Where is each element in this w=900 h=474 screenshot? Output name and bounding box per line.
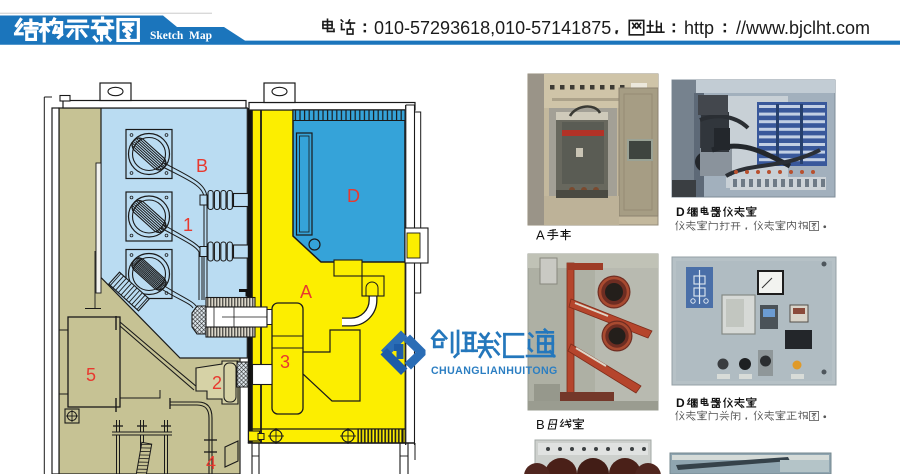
svg-text:010-57293618,010-57141875: 010-57293618,010-57141875	[374, 18, 611, 38]
svg-text:Sketch Map: Sketch Map	[150, 30, 212, 42]
svg-text:B: B	[536, 417, 545, 432]
svg-text:5: 5	[86, 365, 96, 385]
svg-text:D: D	[676, 205, 685, 219]
svg-text:D: D	[347, 186, 360, 206]
svg-text:4: 4	[206, 453, 216, 473]
svg-text:B: B	[196, 156, 208, 176]
svg-text:A: A	[536, 228, 545, 243]
svg-text://www.bjclht.com: //www.bjclht.com	[736, 18, 870, 38]
svg-text:A: A	[300, 282, 312, 302]
svg-text:2: 2	[212, 373, 222, 393]
svg-text:D: D	[676, 396, 685, 410]
svg-text:CHUANGLIANHUITONG: CHUANGLIANHUITONG	[431, 365, 558, 377]
svg-text:3: 3	[280, 352, 290, 372]
svg-text:1: 1	[183, 215, 193, 235]
svg-text:http: http	[684, 18, 714, 38]
